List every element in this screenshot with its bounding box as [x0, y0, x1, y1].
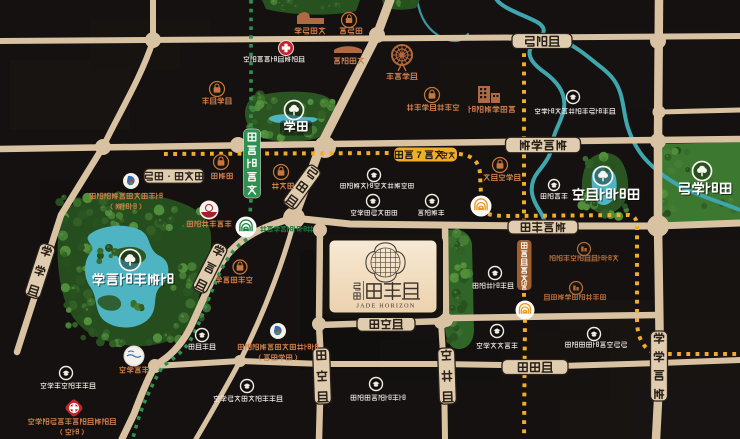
svg-text:7: 7: [416, 150, 421, 161]
svg-text:JADE HORIZON: JADE HORIZON: [357, 303, 416, 310]
